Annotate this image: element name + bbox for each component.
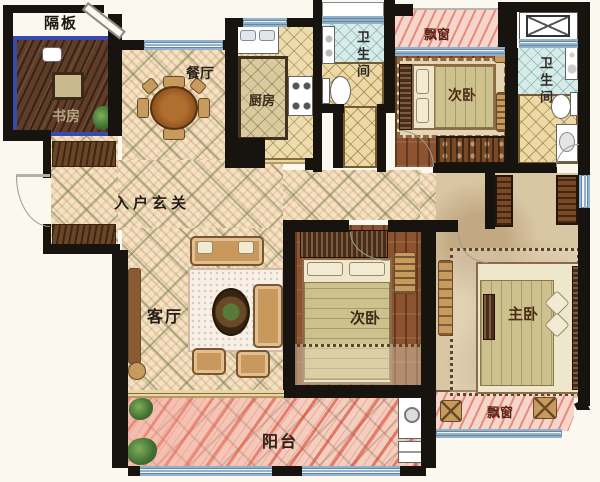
sofa-cushion: [197, 241, 213, 254]
sink-basin: [240, 30, 256, 41]
wall: [384, 0, 395, 110]
railing-post: [272, 466, 302, 476]
master-side-window: [579, 175, 590, 208]
wall: [283, 385, 436, 398]
railing-post: [400, 466, 426, 476]
label-master: 主卧: [508, 303, 538, 324]
coffee-table: [212, 288, 250, 336]
armchair: [192, 348, 226, 375]
railing-post: [128, 466, 140, 476]
bay-bottom-window: [436, 429, 562, 438]
wall: [43, 244, 120, 254]
bath1-vestibule-floor: [343, 106, 377, 168]
bedroom2-bench: [394, 252, 416, 294]
shaft-window: [519, 39, 578, 48]
kitchen-sliding-door: [265, 158, 305, 164]
label-bedroom1: 次卧: [448, 85, 476, 105]
bath1-washbasin: [322, 26, 335, 64]
floor-plan: 隔板 书房 餐厅 厨房 卫生间 卫生间 飘窗 次卧 入户玄关 客厅 次卧 主卧 …: [0, 0, 600, 482]
wall: [421, 230, 436, 468]
wall: [485, 173, 495, 229]
toilet-tank: [322, 78, 330, 104]
balcony-sliding-door: [128, 390, 284, 398]
pillow: [416, 69, 429, 94]
label-bath2: 卫生间: [536, 56, 555, 107]
label-balcony: 阳台: [262, 428, 298, 452]
wall: [3, 5, 13, 137]
pillow: [349, 262, 385, 276]
label-bath1: 卫生间: [353, 30, 372, 81]
wall: [313, 0, 322, 172]
wall: [43, 136, 51, 178]
tv-cabinet: [128, 268, 141, 364]
wall: [388, 220, 422, 232]
wall: [505, 48, 518, 173]
bay-seat: [533, 397, 557, 419]
toilet-tank: [570, 92, 578, 116]
wall: [225, 138, 265, 168]
wall: [395, 4, 413, 16]
label-kitchen: 厨房: [249, 90, 275, 109]
shaft-x-icon: [526, 15, 570, 37]
label-study: 书房: [52, 106, 80, 126]
master-wardrobe-right: [556, 175, 578, 225]
label-bay-top: 飘窗: [424, 24, 450, 43]
label-partition: 隔板: [44, 12, 78, 33]
wall: [333, 111, 343, 168]
bath1-shelf: [322, 2, 384, 17]
armchair: [236, 350, 270, 378]
wall: [283, 220, 295, 398]
study-lamp-icon: [42, 47, 62, 62]
dining-window: [144, 40, 223, 50]
master-wardrobe-left: [495, 175, 513, 227]
label-living: 客厅: [147, 303, 183, 327]
entry-doormat: [52, 141, 116, 167]
label-dining: 餐厅: [186, 63, 214, 83]
sofa-side: [253, 284, 283, 348]
dining-chair: [198, 98, 210, 118]
washing-machine-drum: [404, 407, 420, 423]
wall: [112, 250, 128, 468]
bath1-window: [322, 16, 384, 24]
label-bedroom2: 次卧: [350, 307, 380, 328]
label-bay-bottom: 飘窗: [487, 402, 513, 421]
kitchen-window: [243, 18, 287, 27]
bed-headboard: [399, 64, 412, 130]
wall: [225, 18, 238, 142]
bedroom2-rug: [292, 344, 426, 390]
living-pouf: [128, 362, 146, 380]
bedroom1-wardrobe: [436, 136, 506, 164]
bay-seat: [440, 400, 462, 422]
wall: [377, 111, 386, 172]
dining-chair: [137, 98, 149, 118]
study-table: [52, 72, 84, 100]
toilet-bowl: [330, 76, 351, 106]
sofa-cushion: [238, 241, 254, 254]
pillow: [416, 98, 429, 123]
wall: [287, 18, 313, 27]
wall: [433, 163, 557, 173]
entry-door-arc: [16, 176, 50, 227]
bath2-washbasin: [565, 46, 578, 80]
sink-basin: [259, 30, 275, 41]
wall: [498, 2, 517, 50]
master-dresser: [438, 260, 453, 336]
dining-table: [150, 86, 198, 130]
pillow: [307, 262, 343, 276]
wall: [118, 40, 146, 50]
stove: [288, 76, 313, 116]
label-foyer: 入户玄关: [114, 192, 190, 213]
bed-throw: [483, 294, 495, 340]
hallway-floor: [283, 170, 421, 220]
bay-top-window: [395, 47, 505, 56]
